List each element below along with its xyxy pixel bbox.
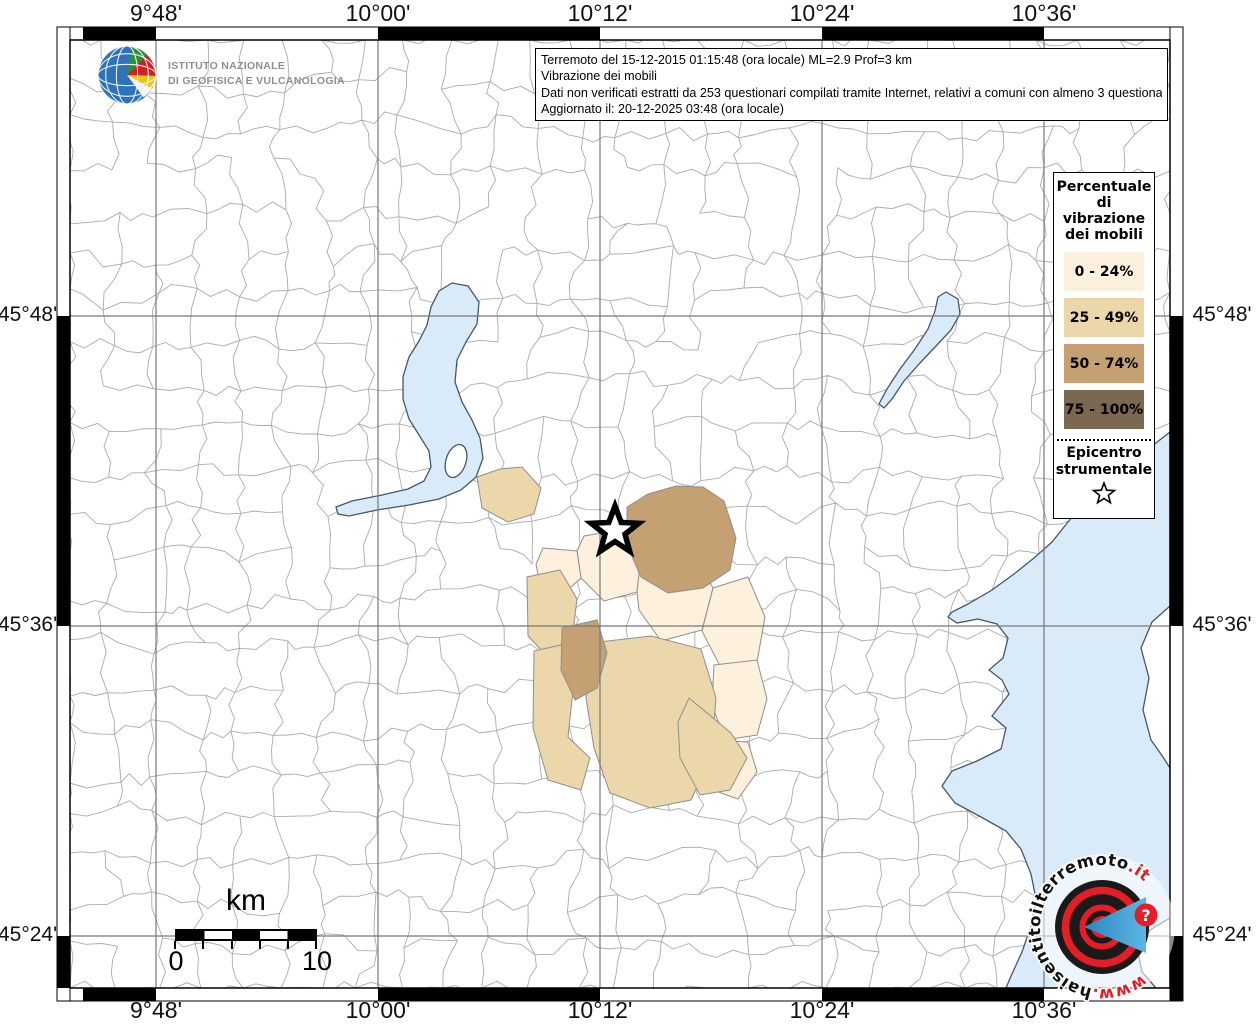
lat-label-right-3: 45°24' — [1190, 923, 1254, 947]
legend-label-50-74: 50 - 74% — [1070, 356, 1139, 372]
legend-swatch-50-74: 50 - 74% — [1064, 344, 1144, 383]
ingv-branding: ISTITUTO NAZIONALE DI GEOFISICA E VULCAN… — [96, 44, 345, 106]
scale-max-label: 10 — [295, 946, 339, 977]
scale-tick — [202, 941, 204, 949]
lon-label-top-1: 9°48' — [96, 0, 216, 27]
lat-label-left-1: 45°48' — [0, 303, 56, 327]
lon-label-bottom-3: 10°12' — [540, 997, 660, 1024]
legend-label-25-49: 25 - 49% — [1070, 310, 1139, 326]
legend-label-75-100: 75 - 100% — [1065, 402, 1143, 418]
lat-label-left-3: 45°24' — [0, 923, 56, 947]
scale-tick — [287, 941, 289, 949]
lon-label-top-3: 10°12' — [540, 0, 660, 27]
legend-swatch-75-100: 75 - 100% — [1064, 390, 1144, 429]
lon-label-bottom-5: 10°36' — [984, 997, 1104, 1024]
lat-label-left-2: 45°36' — [0, 613, 56, 637]
ingv-name-line2: DI GEOFISICA E VULCANOLOGIA — [168, 74, 345, 89]
ingv-name: ISTITUTO NAZIONALE DI GEOFISICA E VULCAN… — [168, 44, 345, 89]
legend-swatch-0-24: 0 - 24% — [1064, 252, 1144, 291]
lon-label-bottom-1: 9°48' — [96, 997, 216, 1024]
lon-label-top-5: 10°36' — [984, 0, 1104, 27]
legend-swatch-25-49: 25 - 49% — [1064, 298, 1144, 337]
lon-label-top-2: 10°00' — [318, 0, 438, 27]
lon-label-bottom-4: 10°24' — [762, 997, 882, 1024]
legend-title: Percentuale di vibrazione dei mobili — [1054, 173, 1154, 245]
scale-min-label: 0 — [154, 946, 198, 977]
lat-label-right-1: 45°48' — [1190, 303, 1254, 327]
ingv-name-line1: ISTITUTO NAZIONALE — [168, 59, 345, 74]
scale-tick — [231, 941, 233, 949]
legend-star-icon — [1091, 481, 1117, 507]
legend-divider — [1057, 439, 1151, 441]
earthquake-info-box: Terremoto del 15-12-2015 01:15:48 (ora l… — [535, 48, 1168, 121]
legend: Percentuale di vibrazione dei mobili 0 -… — [1053, 172, 1155, 519]
legend-label-0-24: 0 - 24% — [1075, 264, 1134, 280]
lat-label-right-2: 45°36' — [1190, 613, 1254, 637]
info-line-event: Terremoto del 15-12-2015 01:15:48 (ora l… — [541, 52, 1162, 68]
map-figure: ? www.haisentitoilterremoto.it 9°48' 10°… — [0, 0, 1256, 1024]
info-line-updated: Aggiornato il: 20-12-2025 03:48 (ora loc… — [541, 101, 1162, 117]
logo-question-mark: ? — [1141, 906, 1150, 925]
scale-bar — [175, 929, 317, 941]
ingv-globe-icon — [96, 44, 158, 106]
info-line-effect: Vibrazione dei mobili — [541, 68, 1162, 84]
scale-tick — [259, 941, 261, 949]
legend-epicenter-title: Epicentro strumentale — [1054, 445, 1154, 479]
info-line-source: Dati non verificati estratti da 253 ques… — [541, 85, 1162, 101]
scale-bar-unit: km — [175, 884, 317, 918]
lon-label-top-4: 10°24' — [762, 0, 882, 27]
lon-label-bottom-2: 10°00' — [318, 997, 438, 1024]
